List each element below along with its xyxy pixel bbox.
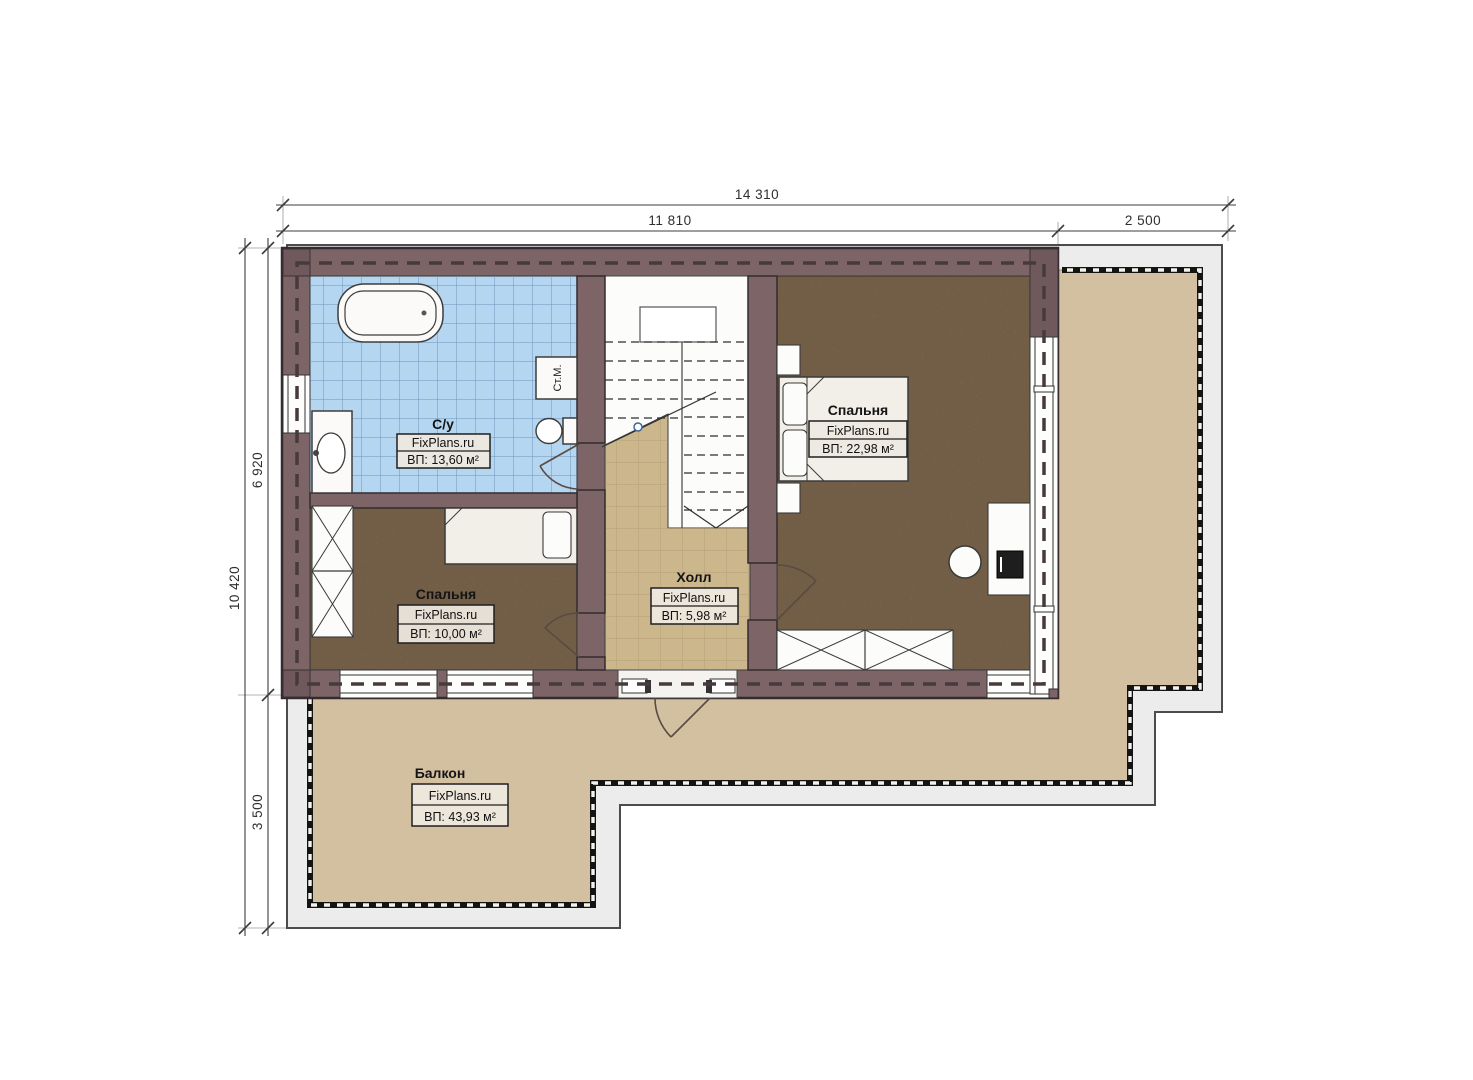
pillow [783,430,807,476]
floor-plan-canvas: 14 310 11 810 2 500 10 420 6 920 3 500 [0,0,1473,1080]
room-brand: FixPlans.ru [412,436,475,450]
dimensions-left: 10 420 6 920 3 500 [227,238,286,936]
dim-left-upper: 6 920 [250,452,265,488]
stair-direction-origin [634,423,642,431]
dim-left-lower: 3 500 [250,794,265,830]
wall-bedroom-hall-stub [577,657,605,670]
office-chair [949,546,981,578]
room-name: Спальня [416,586,476,602]
door-sidelight [622,679,647,693]
room-area: ВП: 13,60 м² [407,453,479,467]
wall-stair-bedroom [748,276,777,563]
sink [312,411,352,493]
bed-single [445,508,577,564]
desk [988,503,1030,595]
room-brand: FixPlans.ru [663,591,726,605]
room-brand: FixPlans.ru [827,424,890,438]
nightstand [777,345,800,375]
wall-bathroom-stair [577,276,605,443]
wardrobe-right [777,630,953,670]
door-jamb [645,680,651,693]
sink-faucet [313,450,319,456]
room-name: Холл [676,569,711,585]
room-brand: FixPlans.ru [415,608,478,622]
wall-bedroom-hall [577,490,605,613]
bathtub [338,284,443,342]
room-name: Балкон [415,765,466,781]
nightstand [777,483,800,513]
washing-machine: Ст.М. [536,357,577,399]
corner-post [1049,689,1058,698]
room-name: С/у [432,416,454,432]
room-name: Спальня [828,402,888,418]
dimensions-top: 14 310 11 810 2 500 [276,187,1236,244]
wall-hall-bedroom-stub [748,620,777,670]
dim-top-total: 14 310 [735,187,779,202]
window-left-wall [283,375,310,433]
room-area: ВП: 22,98 м² [822,442,894,456]
room-area: ВП: 10,00 м² [410,627,482,641]
dim-left-total: 10 420 [227,566,242,610]
wardrobe-left [312,506,353,637]
room-area: ВП: 5,98 м² [662,609,727,623]
bathtub-drain [422,311,427,316]
door-jamb [706,680,712,693]
monitor [997,551,1023,578]
washing-machine-label: Ст.М. [552,364,564,391]
stair-landing [640,307,716,342]
dim-top-main: 11 810 [648,213,691,228]
room-brand: FixPlans.ru [429,789,492,803]
dim-top-terrace: 2 500 [1125,213,1161,228]
door-sidelight [710,679,735,693]
room-area: ВП: 43,93 м² [424,810,496,824]
toilet [536,418,577,444]
pillow [543,512,571,558]
pillow [783,383,807,425]
